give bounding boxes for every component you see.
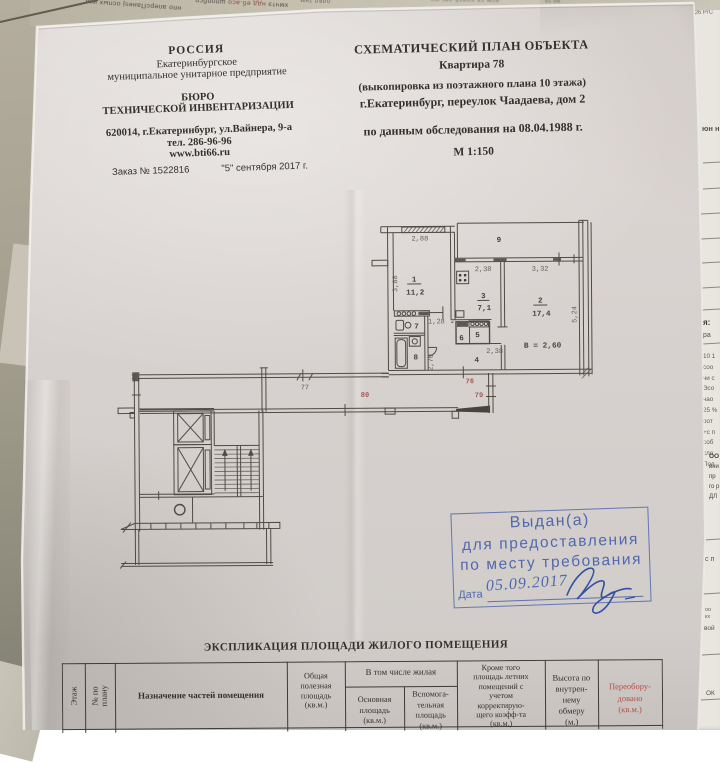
svg-text:8: 8 — [413, 355, 418, 363]
svg-text:77: 77 — [301, 384, 309, 392]
svg-text:3,88: 3,88 — [392, 275, 400, 292]
svg-text:4: 4 — [474, 357, 479, 365]
svg-text:7: 7 — [414, 324, 419, 332]
svg-text:6: 6 — [459, 335, 464, 343]
svg-text:17,4: 17,4 — [532, 311, 551, 319]
svg-text:2,88: 2,88 — [411, 235, 428, 243]
svg-text:3,32: 3,32 — [532, 266, 549, 274]
svg-text:2: 2 — [538, 298, 543, 306]
svg-text:11,2: 11,2 — [406, 289, 425, 297]
svg-text:1: 1 — [412, 277, 417, 285]
svg-text:2,70: 2,70 — [428, 354, 436, 371]
svg-text:3: 3 — [481, 293, 486, 301]
svg-text:2,38: 2,38 — [475, 266, 492, 274]
svg-text:9: 9 — [497, 237, 502, 245]
svg-text:1,28: 1,28 — [428, 318, 445, 326]
svg-text:80: 80 — [361, 392, 369, 400]
svg-text:79: 79 — [475, 392, 483, 400]
svg-text:2,38: 2,38 — [486, 348, 503, 356]
svg-text:В = 2,60: В = 2,60 — [524, 343, 562, 351]
svg-text:5: 5 — [475, 332, 480, 340]
svg-text:5,24: 5,24 — [571, 306, 579, 323]
svg-text:7,1: 7,1 — [478, 305, 492, 313]
svg-text:76: 76 — [466, 378, 474, 386]
